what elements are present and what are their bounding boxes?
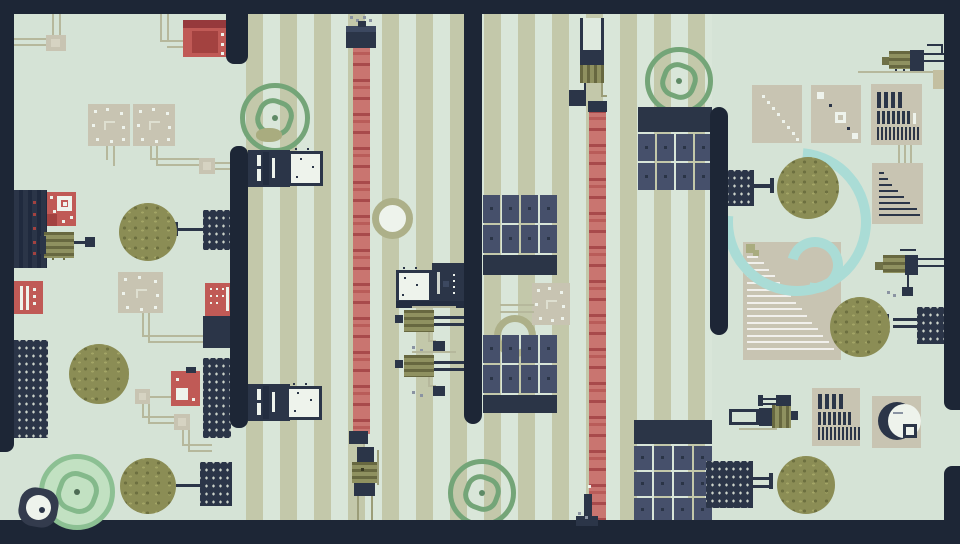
wbar — [257, 155, 261, 166]
arm — [763, 403, 776, 405]
machine-wallB-low — [203, 358, 231, 438]
game-viewport[interactable] — [0, 0, 960, 544]
wire — [142, 335, 204, 337]
arm-tip — [758, 395, 763, 406]
machine-wallB-top — [203, 210, 231, 250]
wbar — [257, 169, 261, 181]
turret-1-box — [433, 341, 445, 351]
arm — [924, 60, 944, 62]
wire — [215, 168, 231, 170]
swirl-field-bottom — [448, 459, 516, 527]
connector-core — [178, 418, 186, 426]
turret-1-arm2 — [434, 323, 464, 326]
harvester1-box3 — [354, 483, 375, 496]
wire — [142, 404, 144, 416]
harvester-br-barrel — [772, 405, 791, 428]
harvester2-barrel — [580, 65, 604, 83]
box — [902, 287, 913, 296]
harvester-mr-barrel — [883, 255, 905, 273]
wire — [142, 313, 144, 335]
arm — [924, 53, 944, 55]
turret-2-cap — [395, 360, 403, 368]
turret-2-box — [433, 386, 445, 396]
wire — [601, 95, 607, 97]
moon-line — [893, 412, 903, 414]
barrel-left-box — [85, 237, 95, 247]
red-machine-1-core2 — [63, 202, 67, 206]
feeder-col — [263, 152, 269, 185]
wire — [739, 428, 777, 430]
wire — [898, 145, 900, 163]
wire — [377, 450, 379, 485]
wall-left — [0, 0, 14, 452]
conveyor-1 — [353, 45, 370, 434]
harvester1-box2 — [357, 447, 374, 462]
wire — [113, 146, 115, 166]
harvester2-box3 — [588, 101, 607, 112]
wbar — [26, 286, 29, 310]
building-dotted-left — [13, 340, 48, 438]
tree-1 — [119, 203, 177, 261]
turret-2-arm2 — [434, 368, 464, 371]
hook — [941, 46, 943, 53]
red-machine-2-screen — [176, 388, 188, 400]
harvester2-lane-r — [601, 18, 604, 52]
connector-core — [51, 39, 60, 47]
harvester-mr-box[interactable] — [905, 255, 918, 275]
console-sq — [443, 281, 449, 287]
wire — [150, 146, 152, 158]
wire — [167, 14, 169, 42]
wire — [182, 444, 212, 446]
barrel-left-cap — [40, 236, 46, 254]
red-machine-top-core — [192, 31, 218, 53]
harvester-br-box[interactable] — [759, 408, 772, 426]
wall-right-top — [944, 14, 960, 410]
harvester-tr-box[interactable] — [910, 50, 924, 71]
turret-1-cap — [395, 315, 403, 323]
tree-6 — [777, 456, 835, 514]
moon-notch — [903, 424, 917, 438]
swirl-clump — [256, 128, 282, 142]
wire — [428, 377, 430, 385]
harvester-tr-barrel — [889, 51, 911, 69]
connector-core — [139, 393, 146, 400]
turret-1-barrel — [404, 310, 434, 332]
tree-2 — [69, 344, 129, 404]
wire — [371, 496, 373, 522]
wall-bottom — [0, 520, 960, 544]
wire — [156, 146, 158, 164]
harvester1-barrel — [352, 462, 379, 483]
wire — [150, 158, 200, 160]
wall-right-mid — [710, 107, 728, 335]
wbar — [272, 392, 275, 412]
wire — [910, 145, 912, 163]
machine-wallB-mid — [203, 316, 231, 348]
hook — [900, 249, 916, 251]
machine-solar-side — [706, 461, 753, 508]
wire — [182, 430, 184, 444]
wbar — [226, 287, 229, 311]
harvester-mr-cap — [875, 262, 883, 270]
robot-eye — [39, 507, 45, 513]
wire — [106, 146, 108, 160]
wire — [412, 351, 456, 353]
bsq-2 — [829, 104, 832, 107]
arm — [763, 398, 776, 400]
arm — [918, 258, 944, 260]
wall-field1-left — [230, 146, 248, 428]
wire — [188, 450, 212, 452]
arm — [176, 484, 202, 487]
arm — [918, 265, 944, 267]
wbar — [913, 113, 916, 124]
arm — [893, 318, 917, 321]
tree-3 — [120, 458, 176, 514]
harvester2-box2 — [569, 90, 586, 106]
wire — [412, 306, 456, 308]
turret-1-arm — [434, 316, 464, 319]
swirl-field2 — [645, 47, 713, 115]
feeder-unit-2 — [248, 384, 290, 421]
wbar — [272, 158, 275, 178]
barrel-left — [44, 232, 74, 258]
arm — [753, 485, 769, 488]
machine-rwall-2 — [917, 307, 944, 344]
connector-core — [203, 162, 211, 170]
arm — [893, 325, 917, 328]
building-striped — [10, 190, 47, 268]
antenna-arm — [178, 228, 204, 231]
wire — [188, 430, 190, 450]
harvester2-box[interactable] — [580, 50, 604, 65]
barrel-dot — [361, 468, 364, 471]
red-machine-2-top — [186, 367, 196, 373]
wire — [500, 304, 534, 306]
wire — [142, 416, 174, 418]
wire — [904, 145, 906, 163]
wbar — [257, 389, 261, 400]
robot-small-box — [776, 395, 791, 406]
wire — [428, 332, 430, 340]
harvester2-lane-fill — [583, 18, 601, 52]
console-strip — [437, 272, 440, 294]
machine-wallB-bottom — [200, 462, 232, 506]
feeder-unit-1 — [248, 150, 290, 187]
harvester2-lane-l — [580, 18, 583, 52]
tree-4 — [777, 157, 839, 219]
machine-rwall-1 — [728, 170, 754, 206]
arm — [753, 477, 769, 480]
feeder-col — [263, 386, 269, 419]
wdot — [588, 485, 591, 488]
donut-field1 — [372, 198, 413, 239]
wire — [14, 38, 48, 40]
wall-stub-field1 — [226, 0, 248, 64]
wbar — [20, 286, 23, 310]
wire — [156, 164, 200, 166]
wire — [160, 40, 184, 42]
antenna-nub — [358, 21, 366, 27]
swirl-field1 — [240, 83, 310, 153]
red-machine-top-strip — [183, 20, 228, 28]
harvester1-box1[interactable] — [349, 431, 368, 444]
harvester-br-lightbox — [729, 409, 759, 425]
feeder-crate-2 — [286, 386, 322, 420]
console-crate — [396, 270, 432, 303]
arm-tip — [770, 178, 774, 193]
tree-5 — [830, 297, 890, 357]
conveyor-2 — [589, 110, 606, 520]
bsq-1 — [817, 92, 824, 99]
wire — [14, 44, 48, 46]
turret-2-arm — [434, 361, 464, 364]
bsq-4 — [847, 127, 850, 130]
wire — [148, 341, 204, 343]
bsq-5 — [852, 133, 858, 139]
wire — [148, 404, 150, 422]
wire — [215, 162, 231, 164]
feeder-crate-1 — [288, 151, 323, 186]
wire — [167, 46, 184, 48]
wire — [160, 14, 162, 42]
wire — [150, 396, 171, 398]
wire — [907, 275, 909, 287]
wire — [148, 422, 174, 424]
wire — [858, 71, 944, 73]
wall-middle — [464, 0, 482, 424]
harvester-br-nub — [791, 411, 798, 420]
turret-2-barrel — [404, 355, 434, 377]
arm-tip — [769, 473, 773, 489]
wire — [500, 311, 534, 313]
wire — [357, 496, 359, 522]
red-machine-1-panel — [47, 214, 57, 226]
wbar — [257, 403, 261, 415]
bsq-3b — [838, 115, 843, 120]
